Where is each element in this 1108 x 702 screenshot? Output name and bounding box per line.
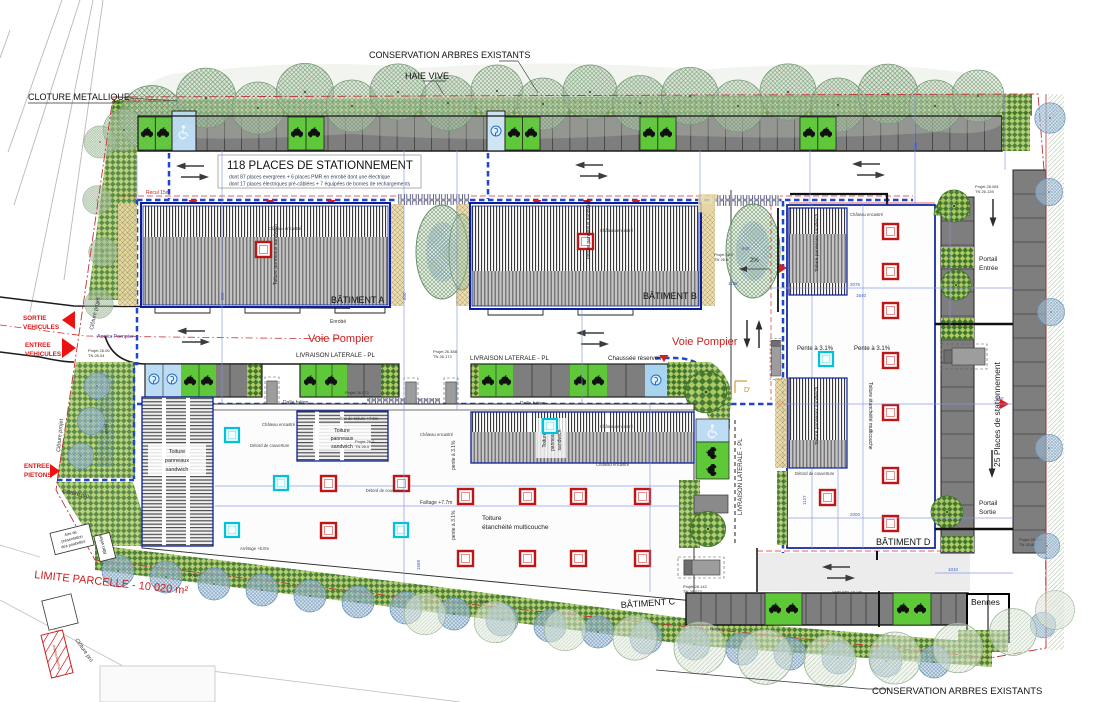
svg-text:Arrêtage +6.0m: Arrêtage +6.0m [240,546,269,551]
svg-text:2075: 2075 [850,282,861,287]
svg-text:BÂTIMENT B: BÂTIMENT B [643,291,697,301]
svg-text:Toiture: Toiture [542,432,548,447]
svg-text:Projet 26.072: Projet 26.072 [345,390,370,395]
svg-text:Château encastré: Château encastré [600,228,634,233]
svg-text:Accès Pompier: Accès Pompier [97,334,134,340]
svg-text:Château encastré: Château encastré [596,462,630,467]
svg-text:ENTREE: ENTREE [25,342,51,349]
svg-text:VEHICULES: VEHICULES [25,351,61,358]
svg-text:LIVRAISON LATERALE - PL: LIVRAISON LATERALE - PL [470,355,550,362]
svg-text:1127: 1127 [802,495,807,505]
svg-text:600: 600 [913,142,918,150]
svg-text:118 PLACES DE STATIONNEMENT: 118 PLACES DE STATIONNEMENT [227,160,413,172]
svg-text:LIVRAISON LATERALE - PL: LIVRAISON LATERALE - PL [296,352,376,359]
svg-text:Enrobé: Enrobé [330,319,346,325]
svg-text:2%: 2% [750,258,759,264]
svg-text:600: 600 [402,292,407,300]
svg-text:Recul 15m: Recul 15m [146,190,170,196]
svg-text:SORTIE: SORTIE [23,315,46,322]
svg-text:Noue: Noue [710,626,722,632]
svg-text:Pente à 3.1%: Pente à 3.1% [797,346,834,352]
svg-text:TN 26.172: TN 26.172 [433,354,452,359]
svg-text:étanchéité multicouche: étanchéité multicouche [482,524,549,531]
svg-text:Faîtage +7.7m: Faîtage +7.7m [420,500,452,506]
svg-text:25 Places de stationnement: 25 Places de stationnement [992,361,1002,467]
svg-text:Entrée: Entrée [979,265,999,272]
svg-text:Toiture panneaux sandwich: Toiture panneaux sandwich [814,387,820,445]
svg-text:350: 350 [996,396,1004,401]
svg-text:Portail: Portail [979,500,998,507]
svg-text:LIVRAISON LATERALE - PL: LIVRAISON LATERALE - PL [738,438,744,515]
svg-text:TN 26.073: TN 26.073 [683,589,702,594]
svg-text:600: 600 [220,292,225,300]
svg-text:sandwich: sandwich [331,444,353,450]
svg-text:D': D' [744,387,750,394]
svg-text:Chaussée réservoir: Chaussée réservoir [608,355,662,362]
svg-text:Détord de couverture: Détord de couverture [366,488,406,493]
svg-text:Bennes: Bennes [971,597,1000,607]
svg-text:pente à 3.1%: pente à 3.1% [451,510,457,540]
svg-text:Pente à 3.1%: Pente à 3.1% [854,346,891,352]
svg-text:Portail: Portail [979,256,998,263]
svg-text:CONSERVATION ARBRES EXISTANTS: CONSERVATION ARBRES EXISTANTS [369,50,530,60]
svg-text:panneaux: panneaux [165,458,189,464]
svg-text:Château encastré: Château encastré [420,432,454,437]
svg-text:BÂTIMENT D: BÂTIMENT D [876,537,931,547]
svg-text:Voie Pompier: Voie Pompier [672,336,738,348]
svg-text:dont 17 places électriques pré: dont 17 places électriques pré-câblées +… [229,182,411,188]
svg-text:Voie Pompier: Voie Pompier [308,333,374,345]
svg-text:TN 26.04: TN 26.04 [88,353,105,358]
svg-text:Sortie: Sortie [979,509,996,516]
svg-text:VEHICULES: VEHICULES [23,324,59,331]
svg-text:HAIE VIVE: HAIE VIVE [405,71,449,81]
svg-text:Toiture panneaux sandwich: Toiture panneaux sandwich [814,214,820,272]
svg-text:Toiture: Toiture [169,449,186,455]
svg-text:Détord de couverture: Détord de couverture [795,471,835,476]
svg-text:Toiture: Toiture [482,515,502,522]
svg-text:Château encastré: Château encastré [268,226,302,231]
svg-text:TN 26.0: TN 26.0 [714,257,729,262]
svg-text:Toiture: Toiture [334,428,350,434]
svg-text:bas de toiture +7.5m: bas de toiture +7.5m [340,416,379,421]
svg-text:sandwich: sandwich [166,467,189,473]
svg-text:pente à 3.1%: pente à 3.1% [451,440,457,470]
svg-text:Toiture panneaux sandwich: Toiture panneaux sandwich [586,199,592,260]
svg-text:Château encastré: Château encastré [850,212,884,217]
svg-text:Toiture panneaux sandwich: Toiture panneaux sandwich [273,224,279,285]
svg-text:1010: 1010 [948,567,959,572]
svg-text:Château encastré: Château encastré [600,424,634,429]
svg-text:2000: 2000 [850,512,861,517]
svg-text:1640: 1640 [856,293,867,298]
svg-text:ENTREE: ENTREE [24,463,50,470]
svg-text:BÂTIMENT A: BÂTIMENT A [331,295,384,305]
svg-text:1568: 1568 [416,559,421,570]
svg-text:TN 26.0: TN 26.0 [355,444,370,449]
svg-text:Toiture étanchéité multicouche: Toiture étanchéité multicouche [867,382,873,450]
svg-text:TN 26.139: TN 26.139 [975,189,994,194]
svg-text:panneaux: panneaux [331,436,354,442]
svg-text:Grillage - Hauteur 2m: Grillage - Hauteur 2m [126,98,169,103]
svg-text:1195: 1195 [728,281,738,286]
svg-text:Château encastré: Château encastré [262,422,296,427]
svg-text:CONSERVATION ARBRES EXISTANTS: CONSERVATION ARBRES EXISTANTS [872,686,1042,697]
svg-text:PIETONS: PIETONS [24,472,52,479]
svg-text:648: 648 [742,246,750,251]
svg-text:CLOTURE METALLIQUE: CLOTURE METALLIQUE [28,92,130,102]
svg-text:Détord de couverture: Détord de couverture [250,443,290,448]
svg-text:dont 87 places evergreen + 6: dont 87 places evergreen + 6 places PMR … [229,175,390,181]
